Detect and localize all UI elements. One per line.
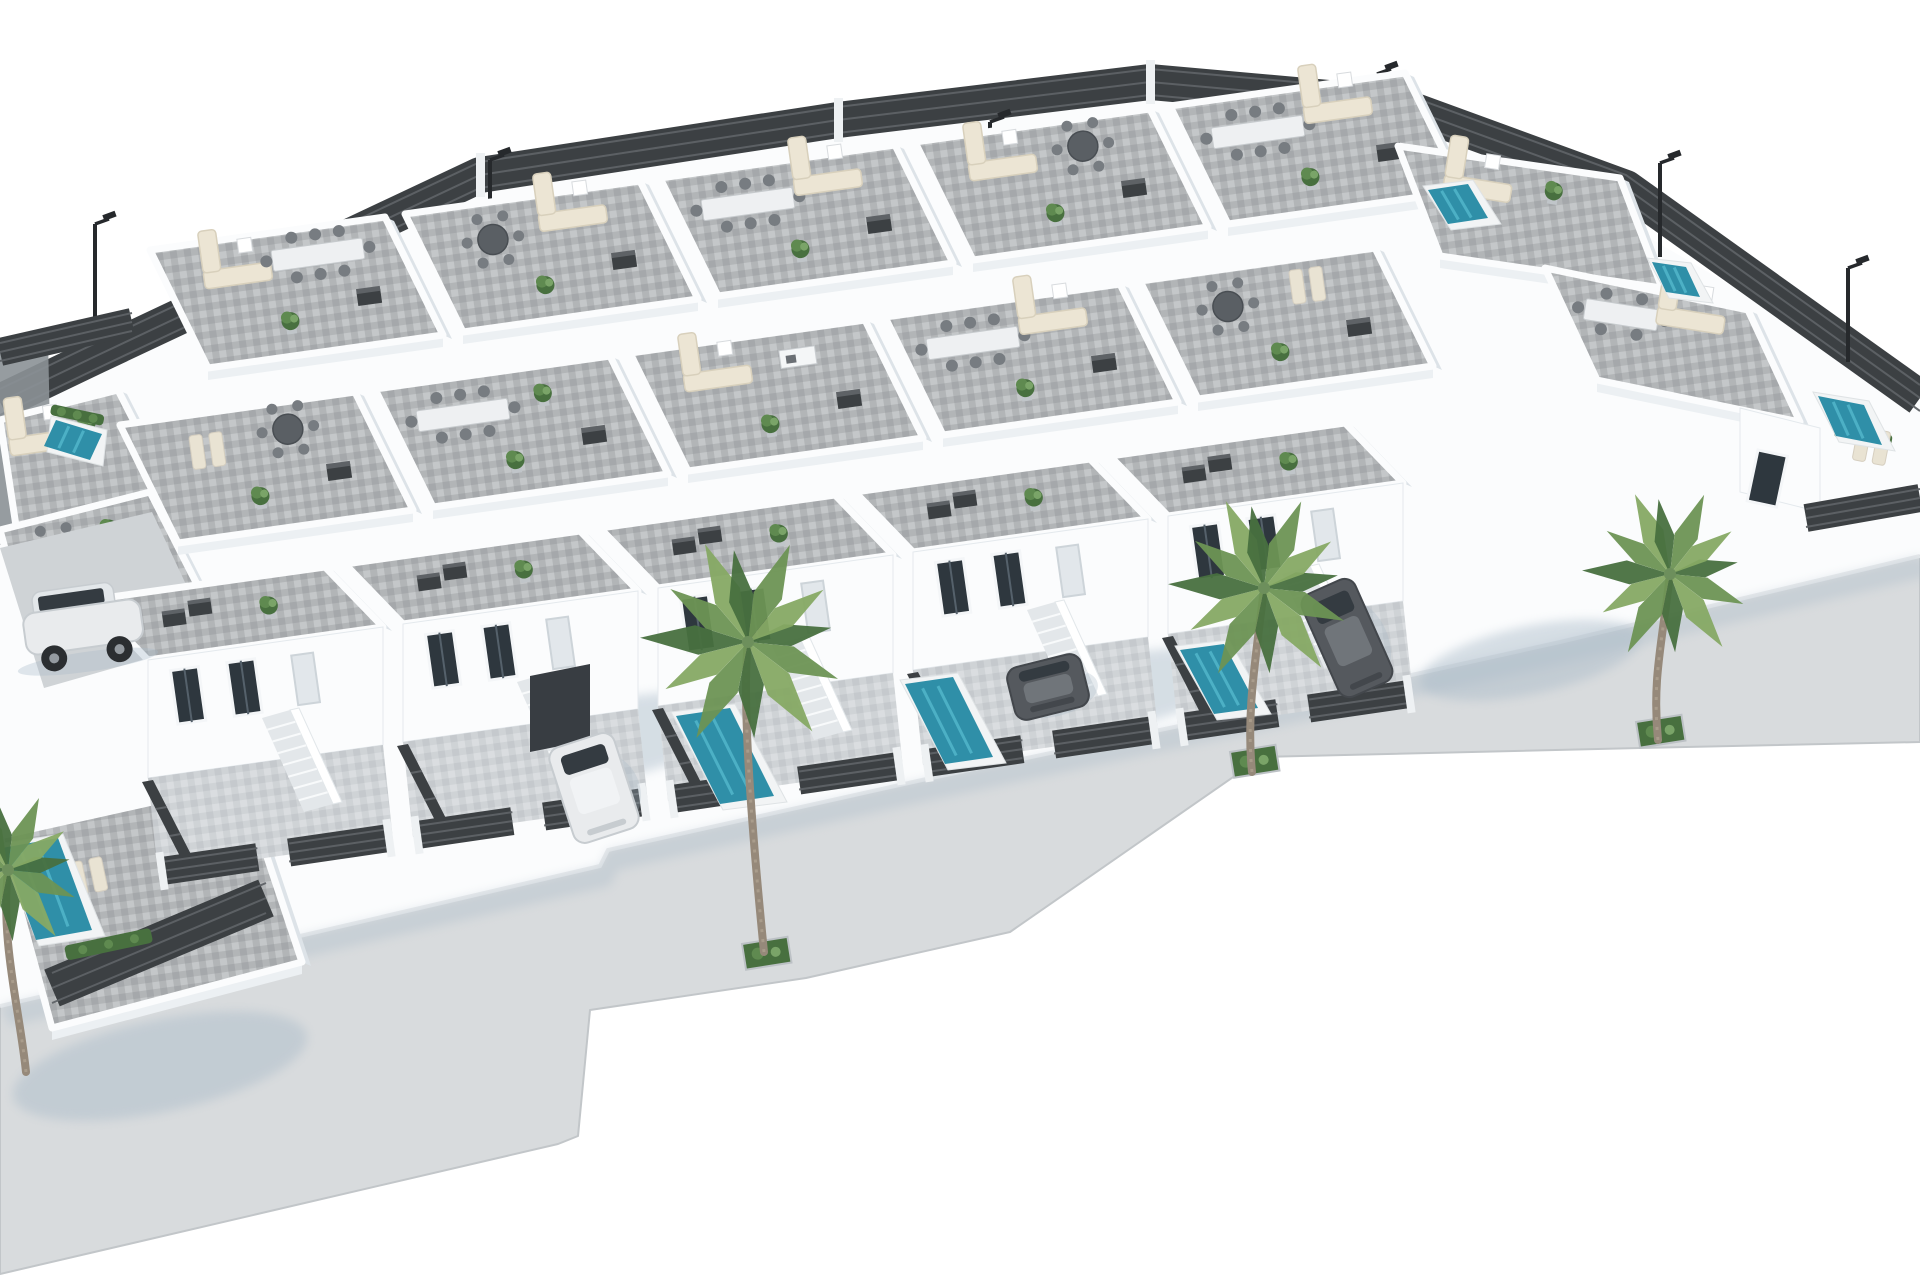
- roof-item-ac: [1121, 178, 1147, 198]
- roof-item-ac: [356, 286, 382, 306]
- fence-post: [1146, 60, 1155, 104]
- lamp-head: [102, 211, 116, 221]
- palm-crown-center: [1258, 582, 1270, 594]
- roof-item-ac: [581, 425, 607, 445]
- coffee-table: [1485, 154, 1501, 170]
- roof-item-ac: [866, 214, 892, 234]
- render-root: [0, 57, 1920, 1274]
- palm-crown-center: [2, 864, 14, 876]
- kitchen-sink: [786, 354, 797, 363]
- coffee-table: [827, 144, 843, 160]
- roof-item-ac: [836, 389, 862, 409]
- roof-item-ac: [1346, 317, 1372, 337]
- coffee-table: [717, 340, 733, 356]
- architectural-render: [0, 0, 1920, 1280]
- lamp-head: [1667, 150, 1681, 160]
- street-lamp: [95, 211, 117, 318]
- facade-window: [227, 659, 262, 716]
- coffee-table: [1337, 72, 1353, 88]
- coffee-table: [572, 180, 588, 196]
- lamp-head: [1855, 255, 1869, 265]
- scene-canvas: [0, 0, 1920, 1280]
- coffee-table: [1052, 283, 1068, 299]
- facade-window: [992, 551, 1027, 608]
- roof-item-ac: [326, 461, 352, 481]
- fence-post: [834, 98, 843, 142]
- coffee-table: [237, 237, 253, 253]
- lamp-head: [1384, 61, 1398, 71]
- facade-window: [482, 623, 517, 680]
- facade-window: [170, 667, 205, 724]
- fence-post: [476, 153, 485, 197]
- roof-item-ac: [611, 250, 637, 270]
- facade-window: [425, 631, 460, 688]
- coffee-table: [1002, 129, 1018, 145]
- palm-crown-center: [742, 636, 754, 648]
- facade-window: [935, 559, 970, 616]
- roof-item-ac: [1091, 353, 1117, 373]
- palm-crown-center: [1664, 568, 1676, 580]
